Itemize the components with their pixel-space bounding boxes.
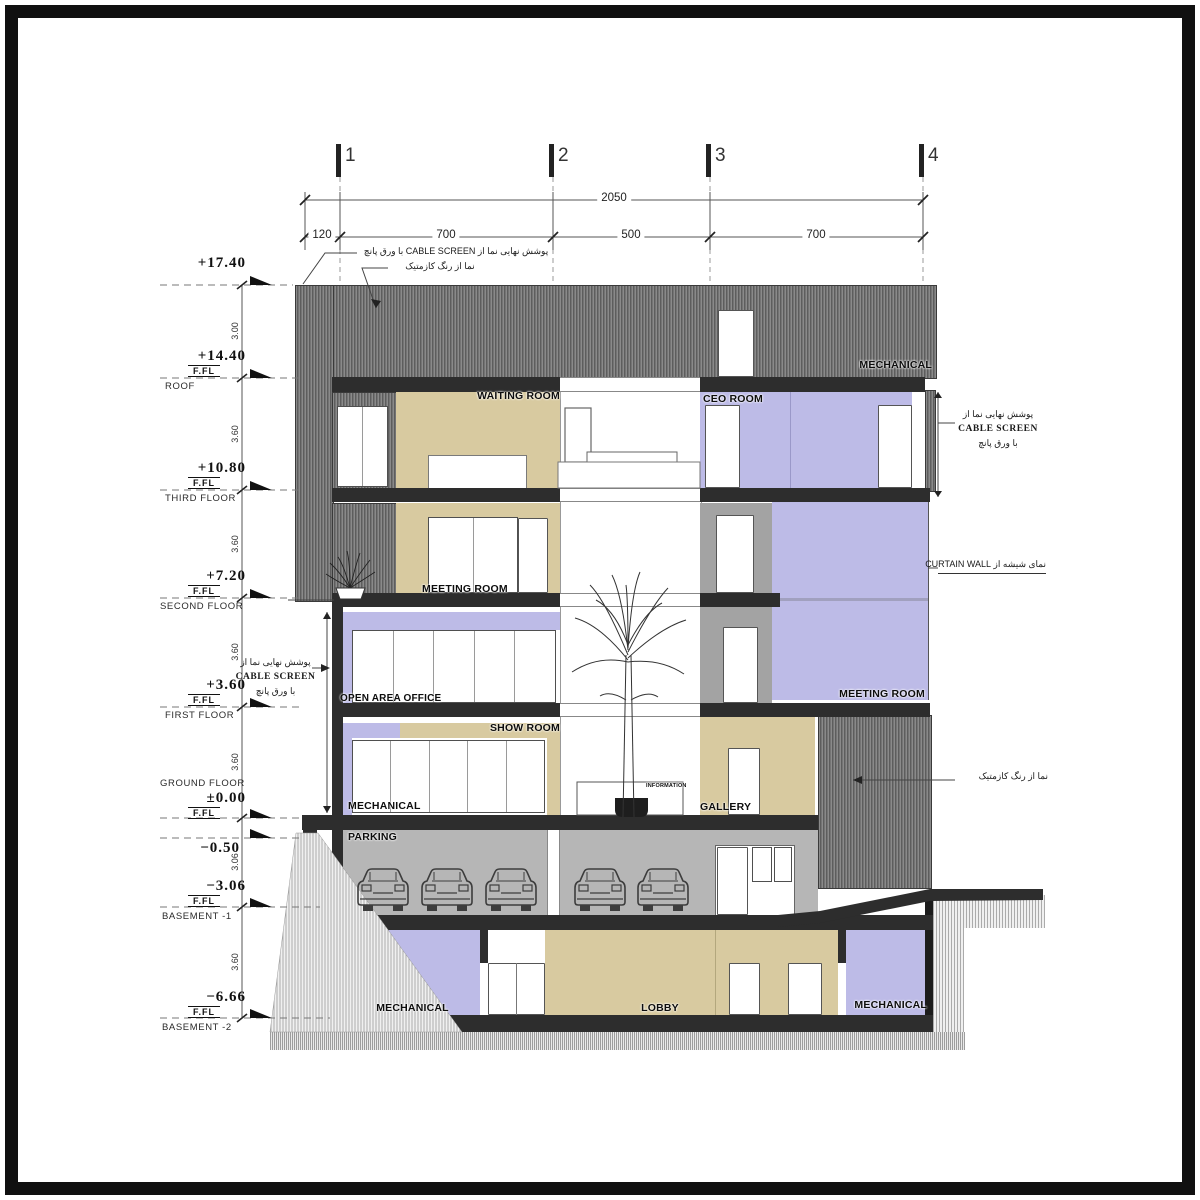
bay-dimension: 700	[802, 229, 829, 241]
note-curtain-wall: نمای شیشه از CURTAIN WALL	[938, 558, 1046, 574]
roof-slab	[700, 377, 925, 392]
second-floor-slab	[700, 593, 780, 607]
third-floor-window	[337, 406, 388, 487]
level-value: +17.40	[178, 255, 246, 272]
note-line-fa: با ورق پانچ	[950, 437, 1046, 451]
second-floor-core-door	[716, 515, 754, 593]
section-drawing: 1 2 3 4 2050 120 700 500 700 پوشش نهایی …	[0, 0, 1200, 1200]
level-name: SECOND FLOOR	[160, 601, 243, 612]
parking-core-wall	[547, 830, 560, 915]
level-ffl: F.FL	[188, 895, 220, 907]
bay-dimension: 500	[617, 229, 644, 241]
office-wall-band	[343, 612, 560, 630]
first-floor-slab	[332, 703, 560, 717]
earth-hatch-right	[933, 895, 1045, 928]
parking-room-door	[717, 847, 748, 915]
window-pane	[468, 741, 506, 812]
note-line-fa: پوشش نهایی نما از	[228, 656, 323, 670]
level-name: BASEMENT -2	[162, 1022, 232, 1033]
grid-axis-tick-1	[336, 144, 341, 177]
window-pane	[353, 631, 394, 702]
showroom-wall-col	[547, 723, 560, 815]
roof-slab-core	[560, 377, 700, 392]
room-label-open-area-office: OPEN AREA OFFICE	[340, 693, 441, 704]
first-floor-slab-core	[560, 703, 700, 717]
level-value: −3.06	[178, 878, 246, 895]
window-pane	[338, 407, 363, 486]
ceo-room-door-right	[878, 405, 912, 488]
room-label-mechanical-roof: MECHANICAL	[832, 359, 932, 371]
left-cable-screen	[295, 285, 334, 602]
meeting-room-door	[518, 518, 548, 593]
vertical-dim: 3.60	[230, 953, 240, 971]
grid-axis-label: 1	[345, 145, 356, 167]
level-value: ±0.00	[178, 790, 246, 807]
second-floor-slab	[332, 593, 560, 607]
window-pane	[474, 518, 518, 592]
earth-hatch-right-wall	[933, 928, 964, 1048]
grid-axis-label: 2	[558, 145, 569, 167]
first-floor-core-door	[723, 627, 758, 703]
window-pane	[434, 631, 475, 702]
curtain-wall-glass	[772, 502, 929, 700]
window-pane	[775, 848, 791, 881]
room-label-gallery: GALLERY	[700, 801, 751, 813]
basement2-slab	[332, 1015, 938, 1032]
vertical-dim: 3.00	[230, 322, 240, 340]
window-pane	[515, 631, 555, 702]
ceo-room-door-left	[705, 405, 740, 488]
note-cable-screen-top: پوشش نهایی نما از CABLE SCREEN با ورق پا…	[352, 245, 560, 259]
third-floor-slab	[700, 488, 930, 502]
note-line-en: CABLE SCREEN	[958, 424, 1038, 434]
door-jamb	[838, 930, 846, 963]
level-ffl: F.FL	[188, 807, 220, 819]
earth-hatch-bottom	[270, 1032, 965, 1050]
ceo-room-partition	[790, 392, 791, 488]
window-pane	[507, 741, 544, 812]
grid-axis-tick-3	[706, 144, 711, 177]
room-label-lobby: LOBBY	[600, 1002, 720, 1014]
level-markers	[250, 276, 272, 1018]
note-line-fa: پوشش نهایی نما از	[950, 408, 1046, 422]
note-cable-screen-right: پوشش نهایی نما از CABLE SCREEN با ورق پا…	[950, 408, 1046, 451]
curtain-wall-slab-line	[772, 598, 928, 601]
office-wall	[343, 612, 352, 703]
second-floor-left-wall	[332, 503, 398, 595]
note-cable-screen-left: پوشش نهایی نما از CABLE SCREEN با ورق پا…	[228, 656, 323, 699]
door-leaf-split	[516, 963, 517, 1015]
second-floor-slab-core	[560, 593, 700, 607]
level-ffl: F.FL	[188, 477, 220, 489]
parking-room-window	[774, 847, 792, 882]
room-label-mechanical-b2-right: MECHANICAL	[843, 999, 927, 1011]
level-value: +7.20	[178, 568, 246, 585]
level-ffl: F.FL	[188, 1006, 220, 1018]
waiting-room-desk	[428, 455, 527, 490]
right-air-gap	[912, 392, 925, 488]
grid-axis-tick-2	[549, 144, 554, 177]
window-pane	[363, 407, 387, 486]
room-label-parking: PARKING	[348, 831, 397, 843]
meeting-room-window	[428, 517, 518, 593]
vertical-dim: 3.60	[230, 535, 240, 553]
entrance-step	[303, 830, 317, 850]
level-value: −6.66	[178, 989, 246, 1006]
level-name: ROOF	[165, 381, 195, 392]
ground-slab	[302, 815, 818, 830]
grid-axis-tick-4	[919, 144, 924, 177]
note-line-en: CABLE SCREEN	[236, 672, 316, 682]
note-paint-right: نما از رنگ کازمتیک	[958, 770, 1048, 784]
vertical-dim: 3.06	[230, 853, 240, 871]
room-label-show-room: SHOW ROOM	[455, 722, 560, 734]
window-pane	[429, 518, 474, 592]
note-paint-top: نما از رنگ کازمتیک	[385, 260, 495, 274]
room-label-ceo-room: CEO ROOM	[703, 393, 763, 405]
level-name: THIRD FLOOR	[165, 493, 236, 504]
bay-dimension: 120	[308, 229, 335, 241]
parking-room-window	[752, 847, 772, 882]
meeting-room-wall	[548, 503, 560, 593]
level-ffl: F.FL	[188, 585, 220, 597]
vertical-dim: 3.60	[230, 425, 240, 443]
room-label-information: INFORMATION	[646, 783, 687, 789]
ground-right-facade	[818, 715, 932, 889]
mechanical-door	[718, 310, 754, 377]
level-value: +10.80	[178, 460, 246, 477]
room-label-meeting-room-1f: MEETING ROOM	[820, 688, 925, 700]
meeting-room-wall	[396, 503, 430, 593]
basement1-slab	[332, 915, 938, 930]
room-label-mechanical-gf: MECHANICAL	[348, 800, 421, 812]
window-pane	[475, 631, 516, 702]
lobby-door	[729, 963, 760, 1015]
room-label-mechanical-b2-left: MECHANICAL	[355, 1002, 470, 1014]
overall-dimension: 2050	[597, 192, 631, 204]
door-jamb	[480, 930, 488, 963]
right-cable-screen	[925, 390, 936, 492]
third-floor-slab	[332, 488, 560, 502]
window-pane	[753, 848, 771, 881]
note-line-fa: با ورق پانچ	[228, 685, 323, 699]
window-pane	[430, 741, 468, 812]
room-label-waiting-room: WAITING ROOM	[455, 390, 560, 402]
grid-axis-label: 4	[928, 145, 939, 167]
bay-dimension: 700	[432, 229, 459, 241]
first-floor-slab	[700, 703, 930, 717]
lobby-door	[788, 963, 822, 1015]
level-ffl: F.FL	[188, 365, 220, 377]
third-floor-slab-core	[560, 488, 700, 502]
level-ffl: F.FL	[188, 694, 220, 706]
level-name: BASEMENT -1	[162, 911, 232, 922]
grid-axis-label: 3	[715, 145, 726, 167]
vertical-dim: 3.60	[230, 753, 240, 771]
room-label-meeting-room-2f: MEETING ROOM	[422, 583, 508, 595]
level-name: GROUND FLOOR	[160, 778, 245, 789]
level-name: FIRST FLOOR	[165, 710, 234, 721]
level-value: +14.40	[178, 348, 246, 365]
window-pane	[394, 631, 435, 702]
